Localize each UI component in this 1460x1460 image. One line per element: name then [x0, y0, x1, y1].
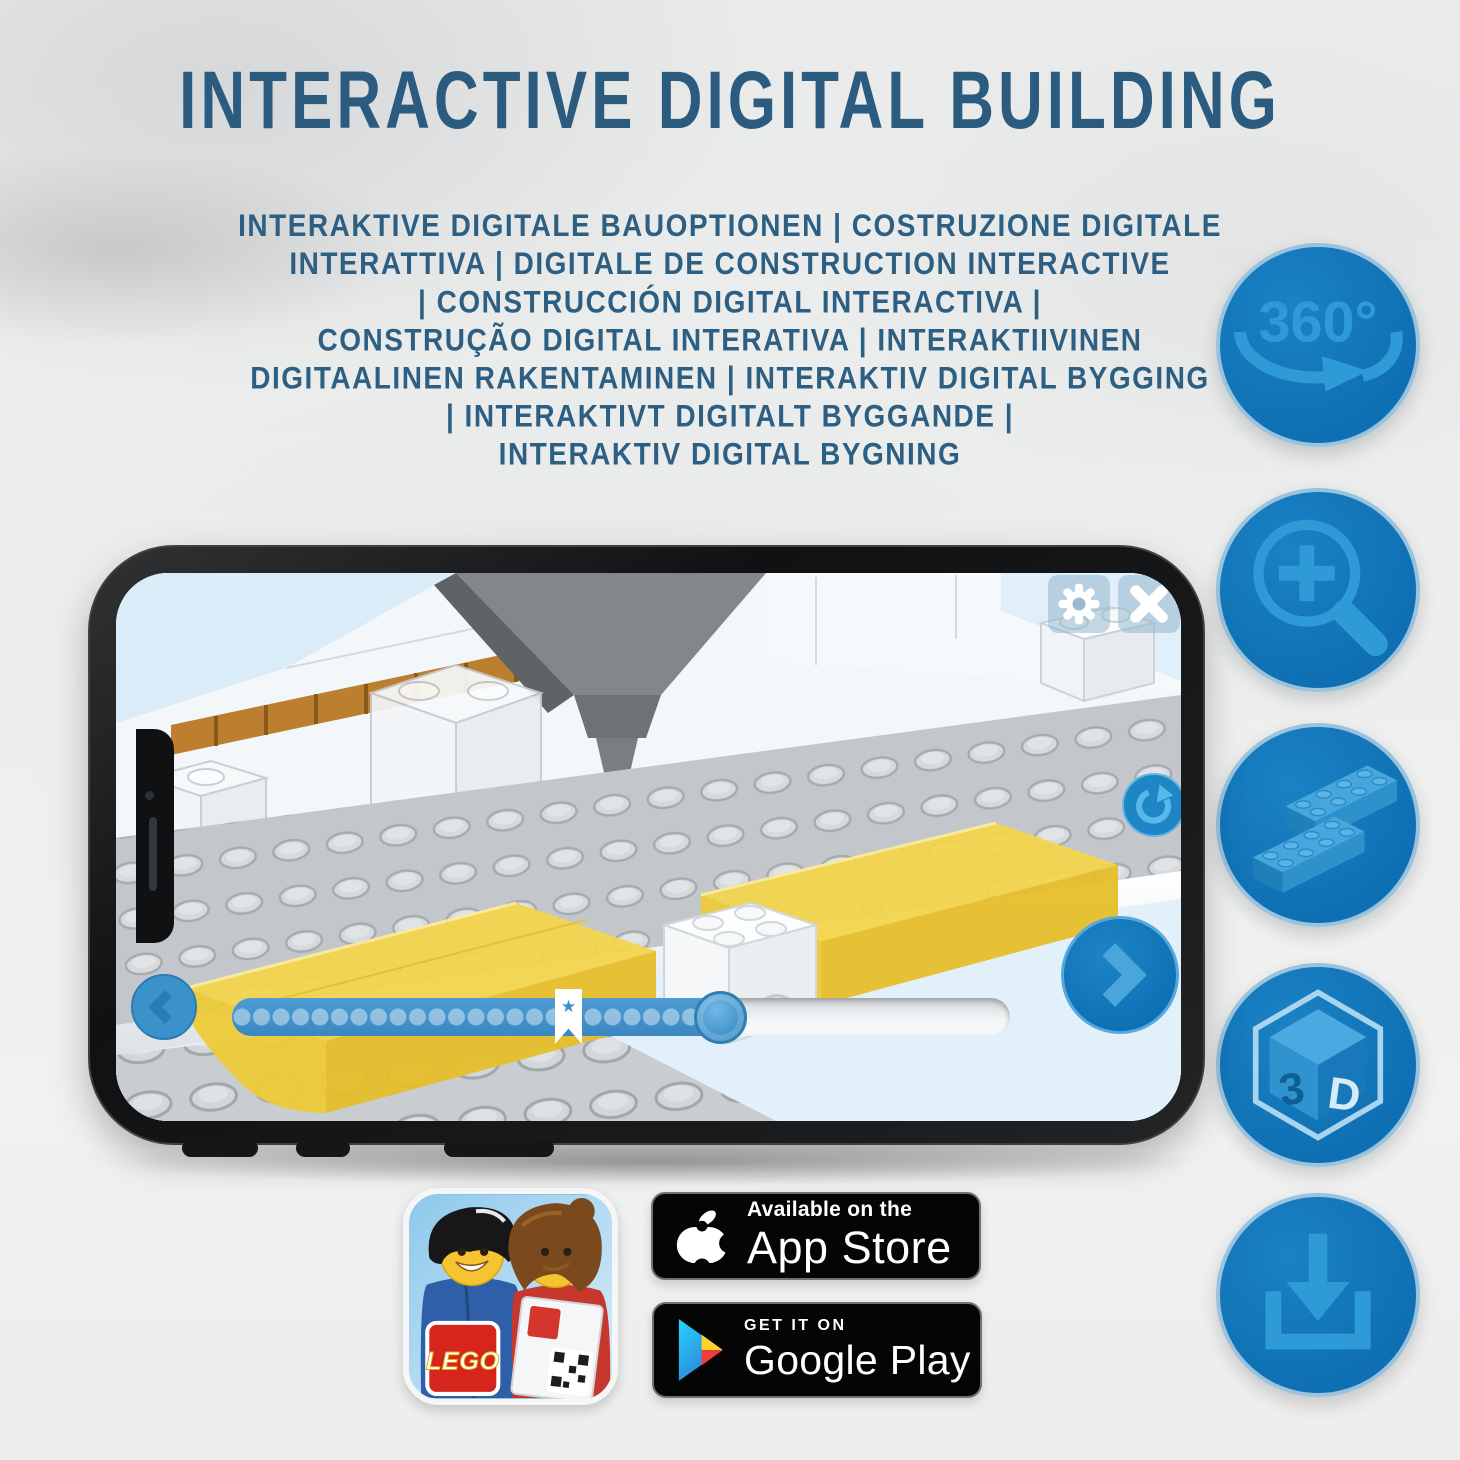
zoom-in-icon [1225, 497, 1411, 683]
download-icon [1225, 1202, 1411, 1388]
next-step-button[interactable] [1061, 916, 1179, 1034]
google-play-tagline: GET IT ON [744, 1317, 971, 1335]
phone: ★ [88, 545, 1205, 1145]
page-title: INTERACTIVE DIGITAL BUILDING [0, 54, 1460, 148]
feature-360-badge: 360° [1216, 243, 1420, 447]
gear-icon [1053, 578, 1105, 630]
qr-code [546, 1347, 594, 1397]
svg-text:D: D [1325, 1069, 1364, 1122]
app-store-name: App Store [747, 1222, 952, 1274]
google-play-badge[interactable]: GET IT ON Google Play [652, 1302, 982, 1398]
slider-thumb[interactable] [694, 991, 747, 1044]
app-store-badge[interactable]: Available on the App Store [651, 1192, 981, 1280]
rotate-icon [1132, 783, 1176, 827]
svg-text:360°: 360° [1258, 290, 1377, 354]
phone-shadow [96, 1138, 1206, 1186]
settings-button[interactable] [1048, 575, 1110, 633]
subtitle-line: INTERAKTIVE DIGITALE BAUOPTIONEN | COSTR… [0, 207, 1460, 245]
lego-app-icon[interactable]: LEGO [403, 1188, 618, 1405]
feature-bricks-badge [1216, 723, 1420, 927]
svg-text:LEGO: LEGO [426, 1348, 500, 1376]
back-chevron-icon [140, 983, 188, 1031]
phone-notch [136, 729, 174, 943]
speaker-grill [149, 817, 157, 891]
close-button[interactable] [1118, 575, 1180, 633]
app-store-tagline: Available on the [747, 1198, 952, 1222]
phone-side-button [182, 1139, 258, 1157]
close-icon [1124, 579, 1174, 629]
lego-bricks-icon [1225, 732, 1411, 918]
subtitle-line: INTERAKTIV DIGITAL BYGNING [0, 435, 1460, 473]
google-play-logo-icon [674, 1315, 726, 1385]
google-play-name: Google Play [744, 1337, 971, 1384]
feature-3d-badge: 3 D [1216, 963, 1420, 1167]
progress-fill [232, 998, 728, 1036]
camera-icon [145, 791, 154, 800]
app-icon-art: LEGO [409, 1194, 612, 1399]
phone-side-button [296, 1139, 350, 1157]
360-rotation-icon: 360° [1225, 252, 1411, 438]
next-chevron-icon [1080, 935, 1160, 1015]
rotate-model-button[interactable] [1122, 773, 1181, 837]
feature-zoom-badge [1216, 488, 1420, 692]
lego-logo: LEGO [426, 1323, 500, 1394]
previous-step-button[interactable] [131, 974, 197, 1040]
apple-logo-icon [675, 1202, 729, 1270]
app-screen: ★ [116, 573, 1181, 1121]
3d-cube-icon: 3 D [1225, 972, 1411, 1158]
phone-side-button [444, 1139, 554, 1157]
marketing-image: INTERACTIVE DIGITAL BUILDING INTERAKTIVE… [0, 0, 1460, 1460]
lego-build-scene [116, 573, 1181, 1121]
instruction-booklet [511, 1297, 603, 1400]
progress-slider[interactable]: ★ [232, 998, 1010, 1036]
feature-download-badge [1216, 1193, 1420, 1397]
